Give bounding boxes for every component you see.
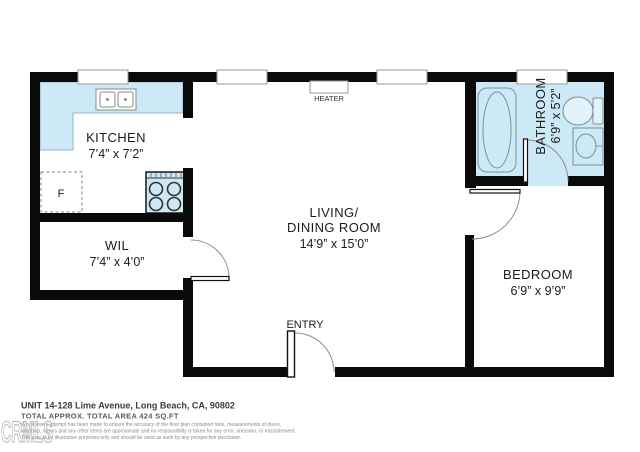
bathroom-label: BATHROOM xyxy=(533,77,548,154)
wall-bottom-left-of-entry xyxy=(183,367,290,377)
living-label-line2: DINING ROOM xyxy=(287,220,381,235)
window-living-right xyxy=(377,70,427,84)
toilet-icon xyxy=(563,97,603,125)
door-leaf xyxy=(288,331,295,377)
wall-left xyxy=(30,72,40,300)
wall-step-vertical xyxy=(183,278,193,377)
bathroom-dims: 6’9” x 5’2” xyxy=(549,89,563,144)
window-living-left xyxy=(217,70,267,84)
living-label-line1: LIVING/ xyxy=(309,205,358,220)
window-kitchen xyxy=(78,70,128,84)
bedroom-door xyxy=(470,190,520,240)
wil-dims: 7’4” x 4’0” xyxy=(90,255,145,269)
living-dims: 14’9” x 15’0” xyxy=(300,237,369,251)
wall-bottom-right-of-entry xyxy=(335,367,614,377)
door-leaf xyxy=(470,190,520,194)
bathroom-door-gap-floor xyxy=(528,176,568,186)
footer-disclaimer-line3: This plan is for illustrative purposes o… xyxy=(21,435,241,441)
floor-plan-page: HEATER F xyxy=(0,0,640,452)
footer-disclaimer-line2: windows, rooms and any other items are a… xyxy=(21,429,296,435)
entry-label: ENTRY xyxy=(286,319,324,331)
heater-icon xyxy=(310,81,348,93)
wall-kitchen-right-mid xyxy=(183,168,193,237)
bedroom-dims: 6’9” x 9’9” xyxy=(511,284,566,298)
watermark-logo: CRMLS xyxy=(1,416,53,449)
footer-address: UNIT 14-128 Lime Avenue, Long Beach, CA,… xyxy=(21,401,235,411)
footer: UNIT 14-128 Lime Avenue, Long Beach, CA,… xyxy=(1,401,296,450)
entry-door xyxy=(288,331,335,377)
door-swing-arc xyxy=(295,333,334,372)
wil-label: WIL xyxy=(105,238,129,253)
floor-plan-canvas: HEATER F xyxy=(0,0,640,452)
wall-bathroom-bottom-right xyxy=(568,176,604,186)
wall-kitchen-wil-divider xyxy=(30,213,193,222)
wil-door xyxy=(191,240,229,281)
wall-right xyxy=(604,72,614,377)
door-swing-arc xyxy=(472,191,520,239)
wall-kitchen-right-stub xyxy=(183,72,193,118)
wall-bathroom-bottom-left xyxy=(465,176,528,186)
footer-disclaimer-line1: Whilst every attempt has been made to en… xyxy=(21,422,281,428)
wall-wil-bottom xyxy=(30,290,193,300)
heater-label: HEATER xyxy=(314,94,344,103)
kitchen-dims: 7’4” x 7’2” xyxy=(89,147,144,161)
fridge-label: F xyxy=(58,188,65,200)
door-leaf xyxy=(191,277,229,281)
wall-bathroom-left xyxy=(465,72,476,188)
bedroom-label: BEDROOM xyxy=(503,267,573,282)
kitchen-label: KITCHEN xyxy=(86,130,146,145)
door-leaf xyxy=(524,139,528,182)
door-swing-arc xyxy=(191,240,229,278)
wall-bedroom-left xyxy=(465,235,474,377)
kitchen-sink-icon xyxy=(96,89,136,110)
